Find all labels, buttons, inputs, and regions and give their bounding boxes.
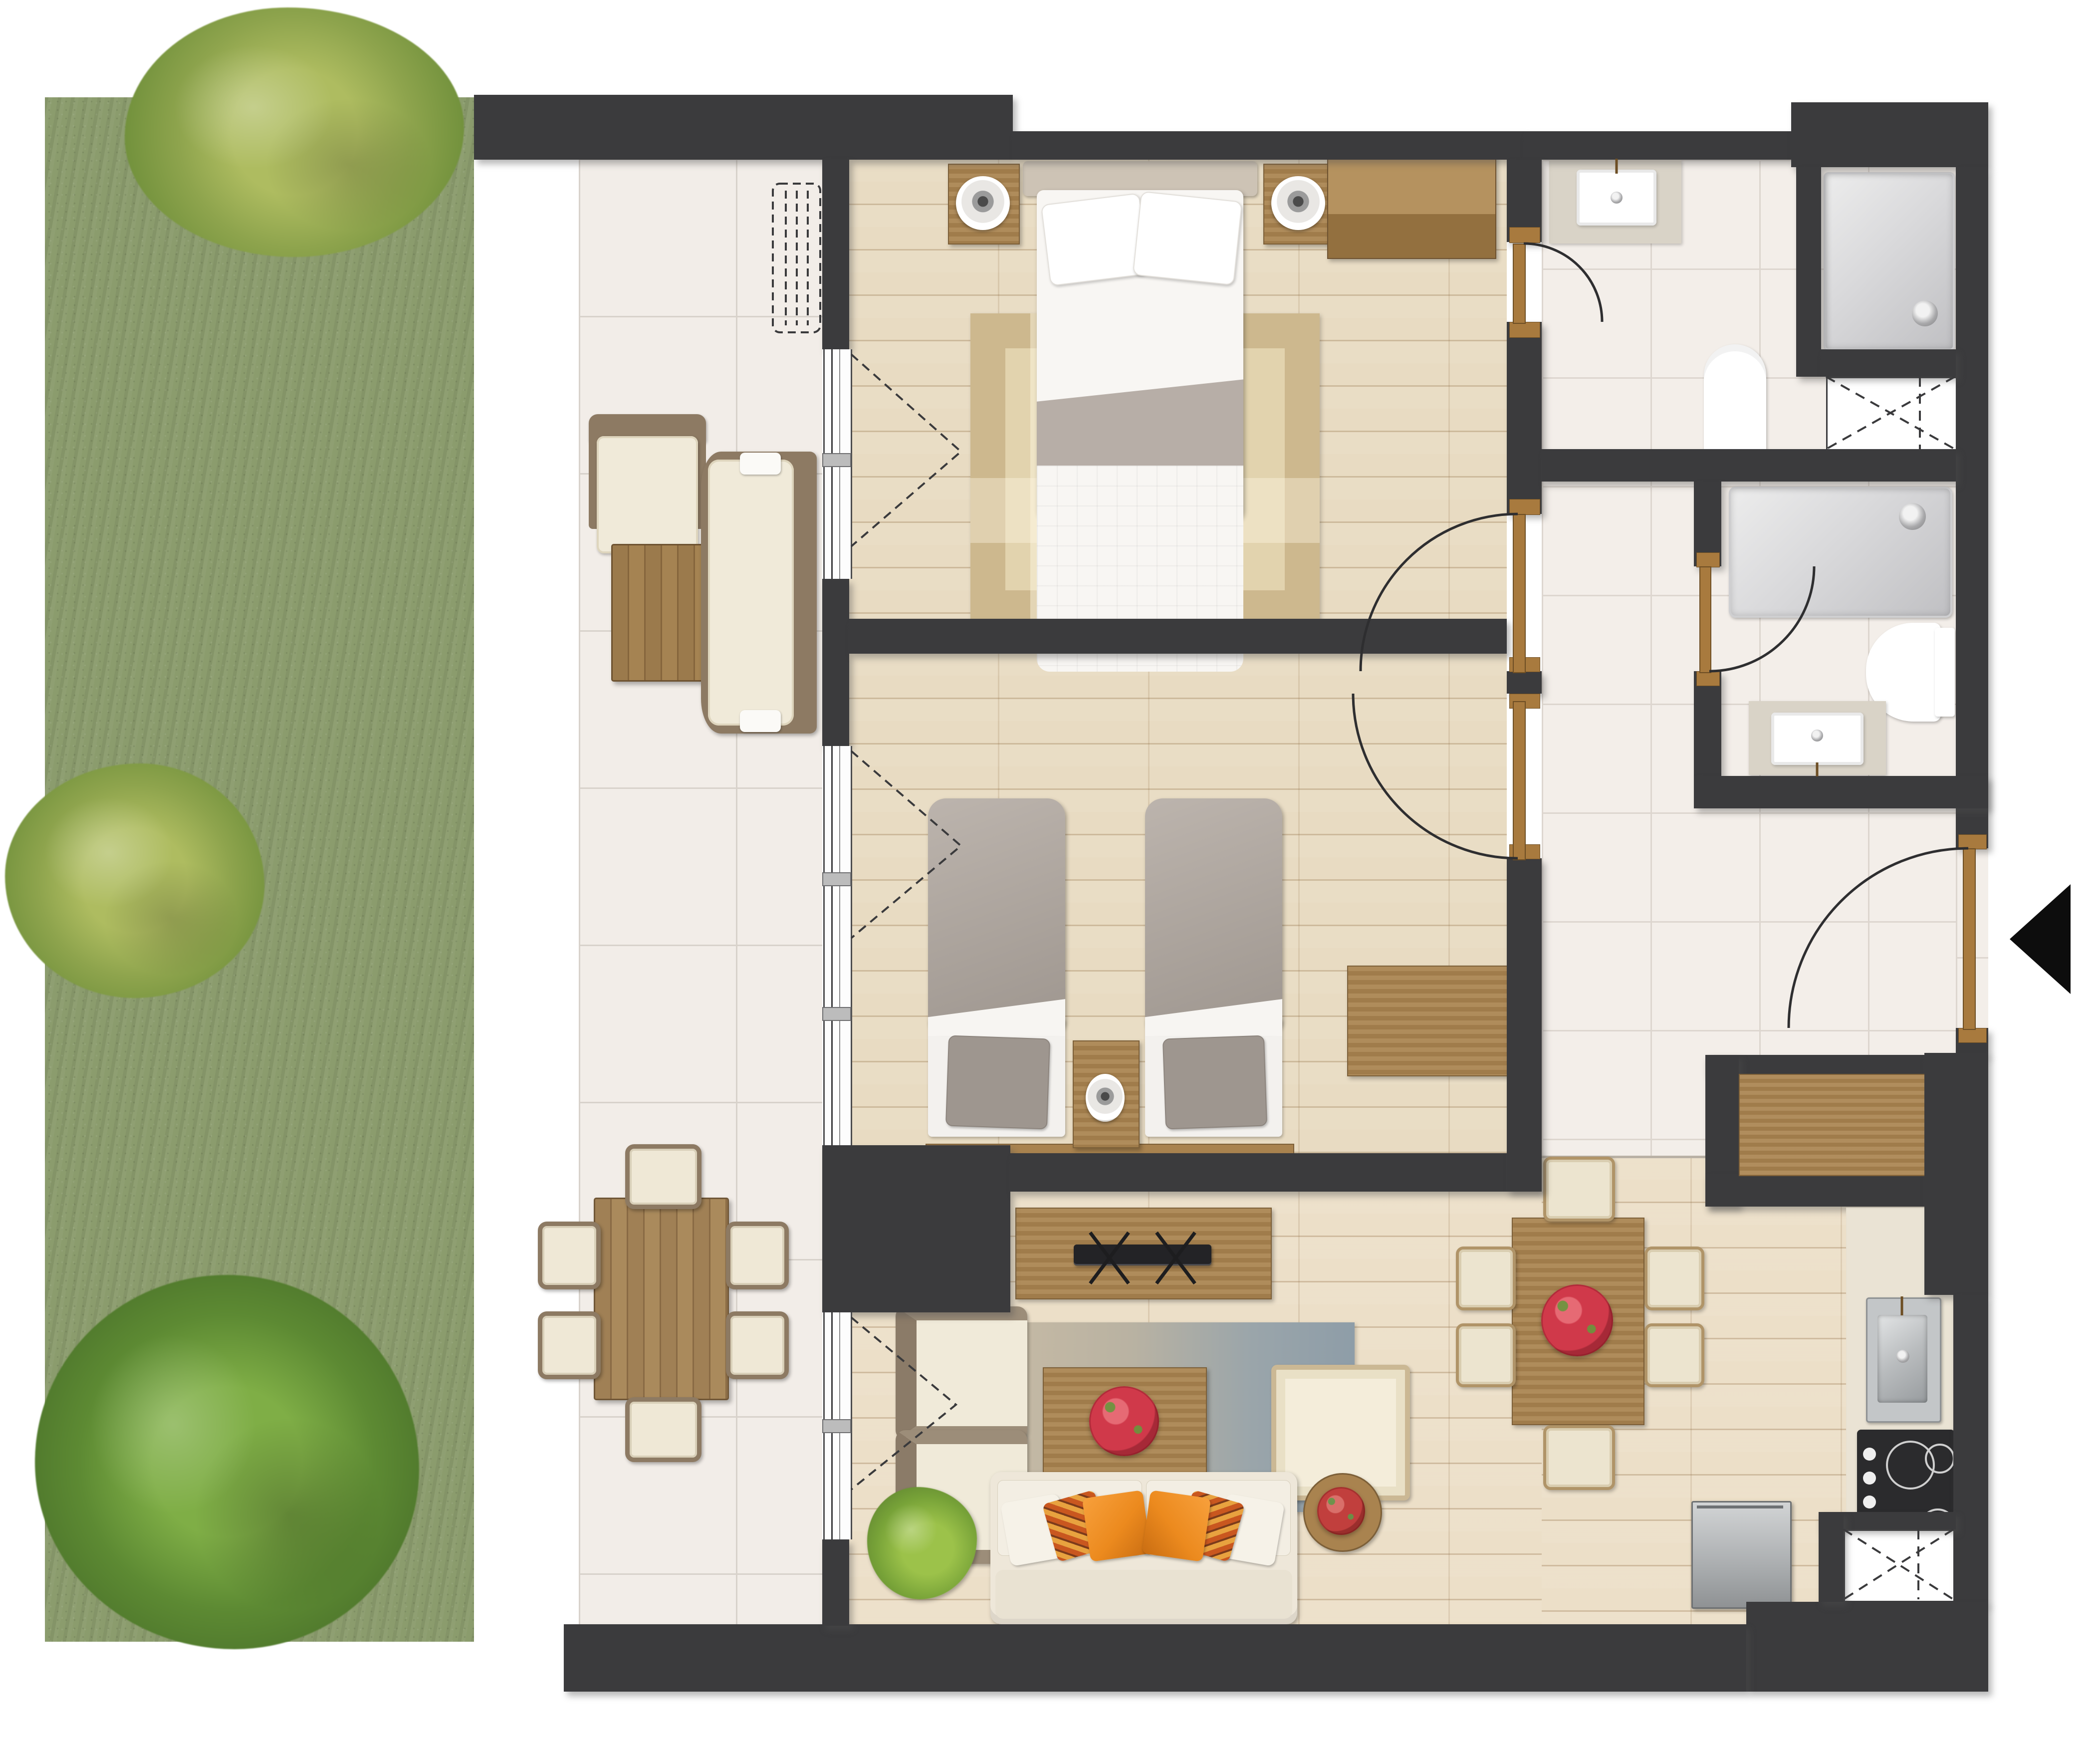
shaft-x-bathroom bbox=[1826, 377, 1955, 449]
door-arc-bathroom2 bbox=[1709, 566, 1814, 671]
door-arc-bedroom2 bbox=[1353, 694, 1518, 858]
shaft-x-kitchen bbox=[1844, 1529, 1953, 1599]
window-tilt-3 bbox=[851, 1317, 956, 1490]
radiator-icon bbox=[773, 184, 820, 332]
door-arc-ensuite bbox=[1524, 244, 1602, 322]
apartment-floor-plan bbox=[0, 0, 2100, 1751]
plan-annotations bbox=[0, 0, 2100, 1751]
window-tilt-1 bbox=[851, 354, 961, 546]
window-tilt-2 bbox=[851, 751, 961, 938]
door-arc-entrance bbox=[1789, 848, 1968, 1028]
faucet-icons bbox=[1617, 159, 1902, 1315]
tv-legs-icon bbox=[1090, 1233, 1195, 1283]
door-arc-master bbox=[1361, 514, 1518, 671]
entrance-arrow-icon bbox=[2010, 884, 2071, 994]
